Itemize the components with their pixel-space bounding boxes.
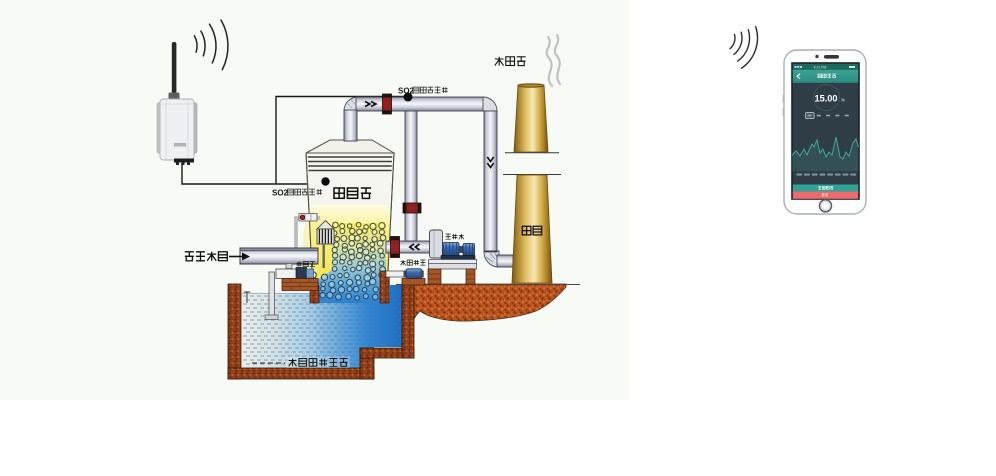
- svg-text:SO2: SO2: [272, 189, 289, 198]
- svg-text:%: %: [841, 98, 845, 103]
- svg-text:4:21 PM: 4:21 PM: [814, 66, 827, 70]
- svg-text:15.00: 15.00: [815, 94, 838, 104]
- svg-text:SO2: SO2: [398, 87, 415, 96]
